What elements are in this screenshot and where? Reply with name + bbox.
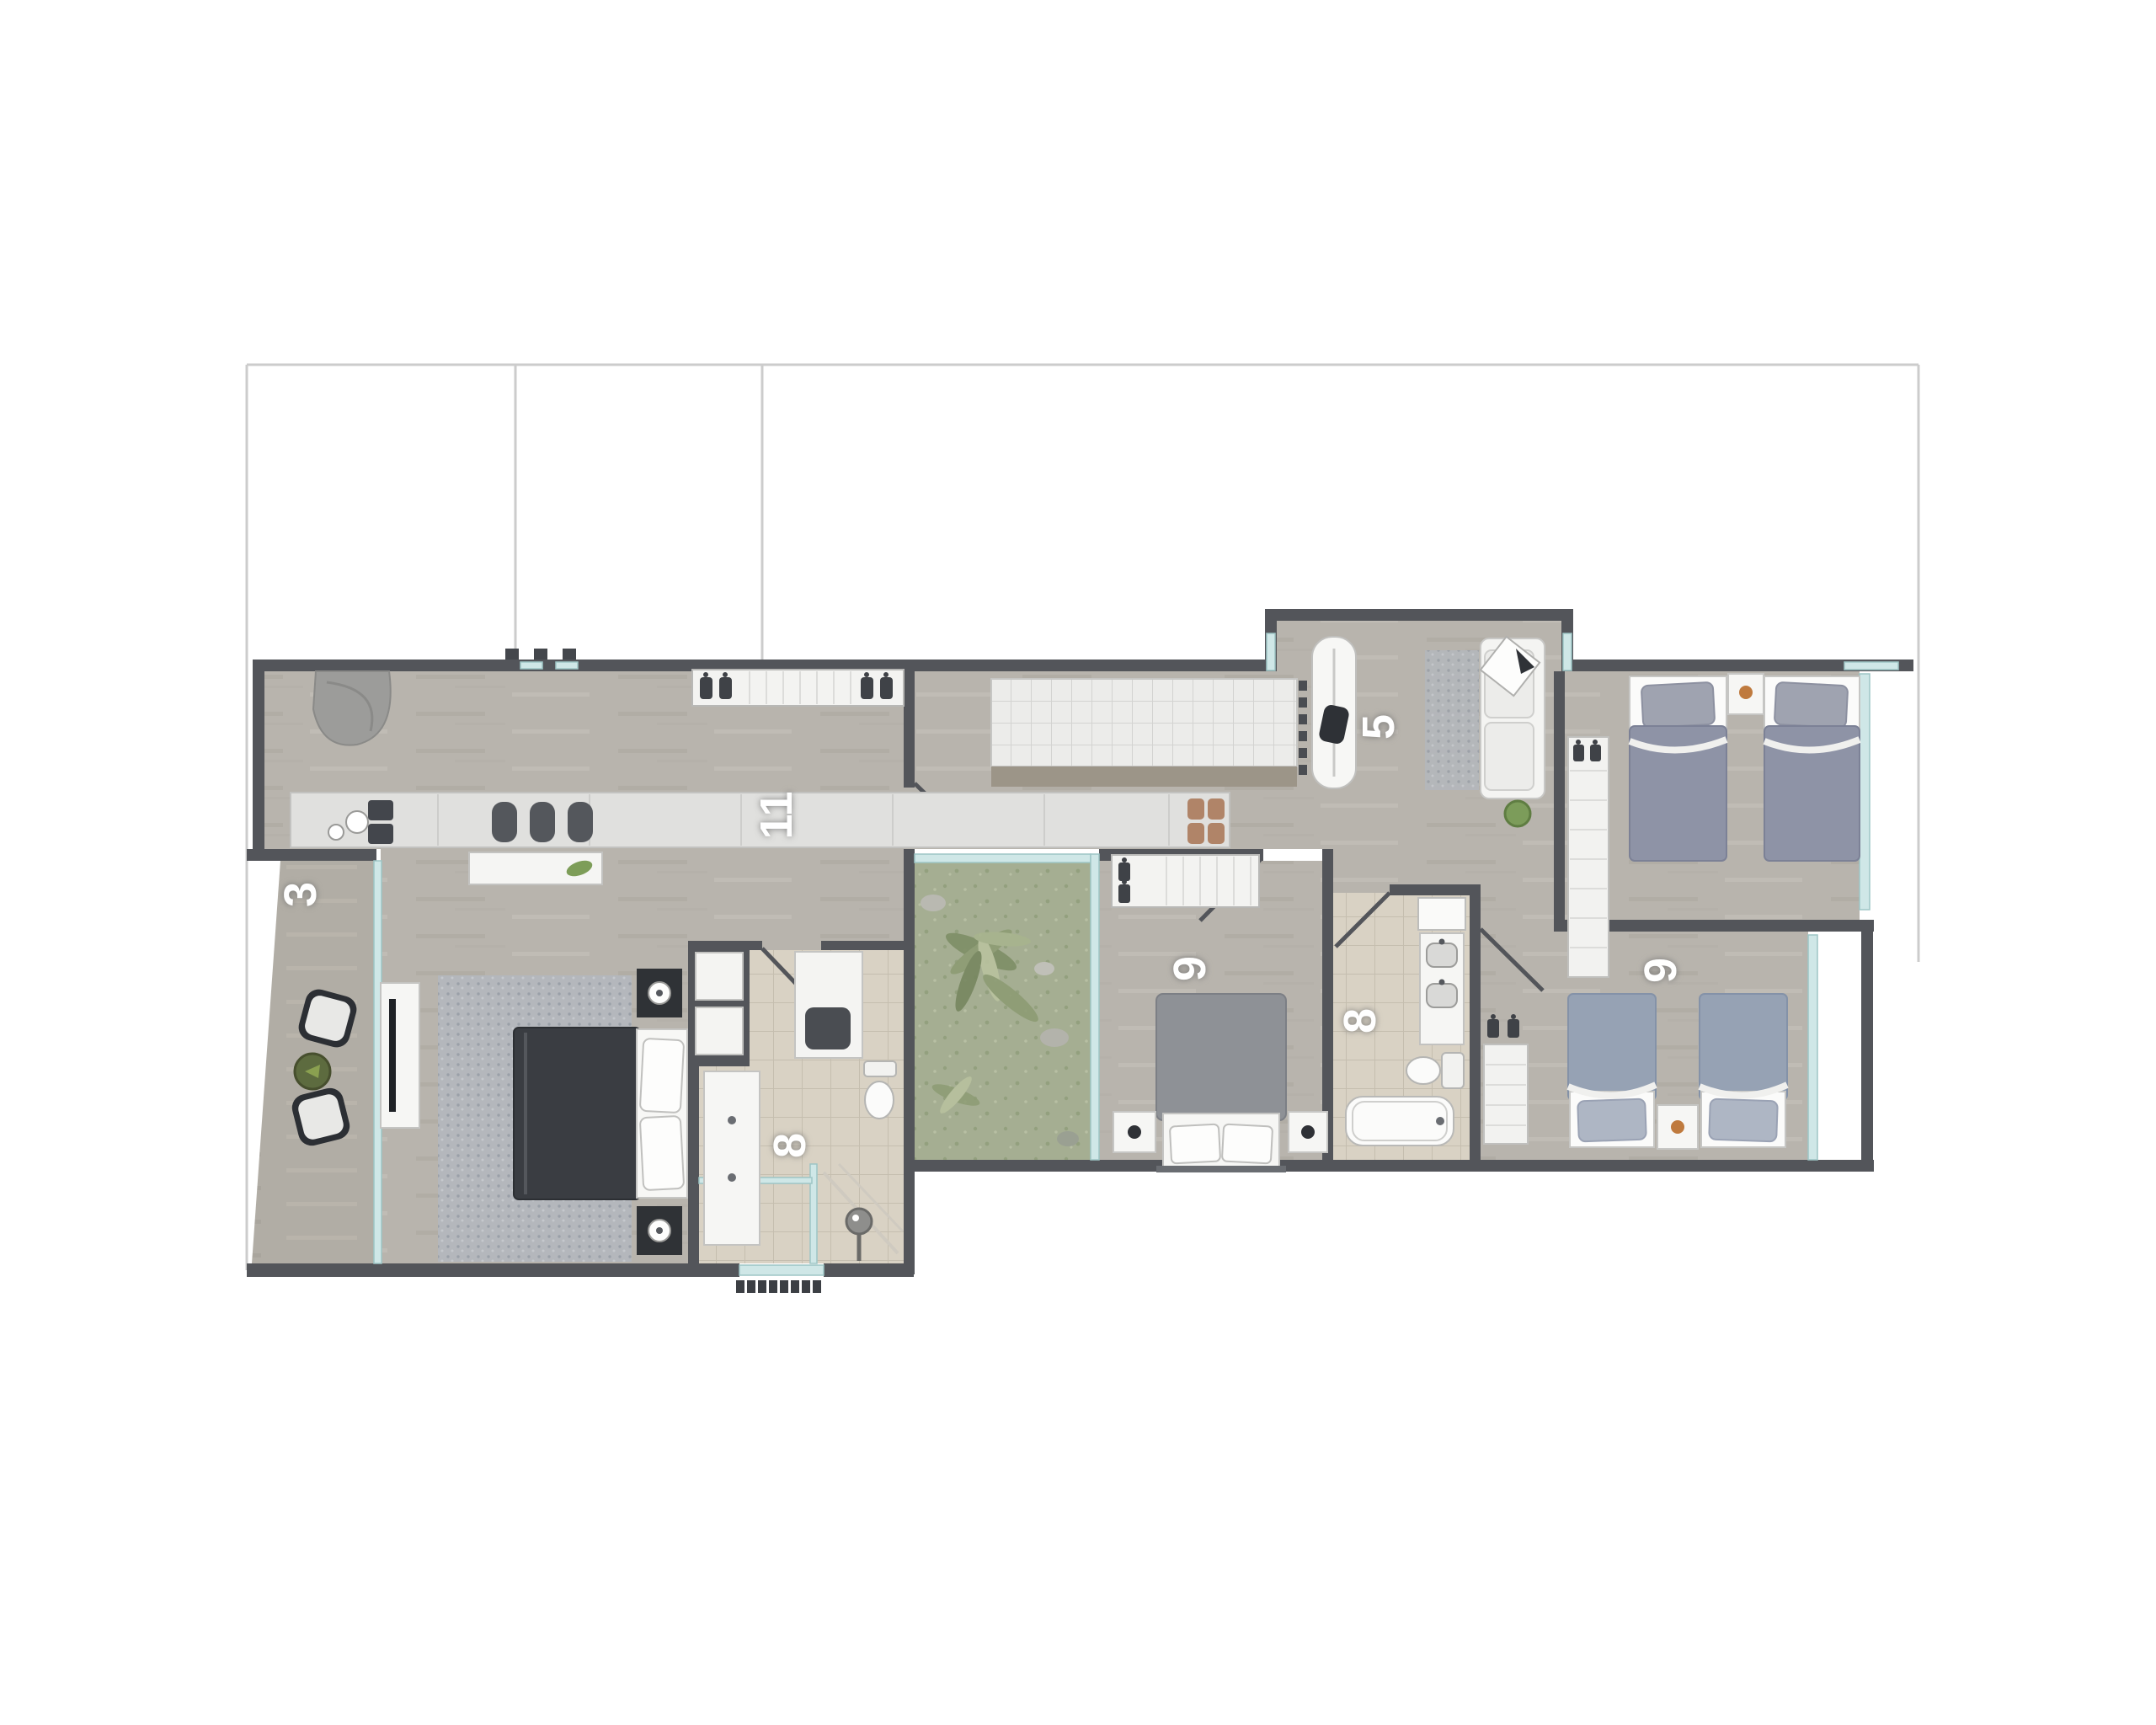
pillow-icon <box>1577 1099 1646 1142</box>
wall-left <box>253 660 264 851</box>
bar-stool <box>568 802 593 842</box>
bar-stool <box>530 802 555 842</box>
wall-mark <box>534 649 547 660</box>
pillow-icon <box>1170 1124 1220 1164</box>
duvet <box>1700 994 1787 1100</box>
wall-mark <box>563 649 576 660</box>
wall-bath-master-north-b <box>821 941 904 950</box>
tv-icon <box>389 999 396 1112</box>
bed-icon <box>1764 676 1860 861</box>
wall-utility-top <box>1265 609 1573 621</box>
wall-bedroom-right-east <box>1861 920 1873 1172</box>
room-label-bedroom-center: 9 <box>1165 956 1215 981</box>
wardrobe <box>1112 855 1259 907</box>
wall-bathroom-shared-top <box>1390 884 1481 895</box>
floor-plan-page: 3 11 5 9 8 8 9 <box>0 0 2156 1725</box>
faucet-icon <box>728 1173 736 1182</box>
wall-hall-divider <box>904 671 915 788</box>
bedroom-topright-window-top <box>1844 662 1898 670</box>
headboard <box>1156 1166 1286 1172</box>
table-lamp-icon <box>1301 1125 1315 1139</box>
garden-glass-east <box>1091 854 1099 1160</box>
decor-orange-icon <box>1671 1120 1684 1134</box>
wall-bottom-left <box>247 1263 739 1277</box>
shower-drain-icon <box>846 1209 872 1234</box>
duvet <box>514 1028 640 1199</box>
stove-icon <box>368 800 393 820</box>
wardrobe <box>1568 737 1609 977</box>
kitchen-window-mark <box>520 662 542 669</box>
room-label-terrace: 3 <box>275 882 326 907</box>
room-label-bathroom-master: 8 <box>765 1133 815 1158</box>
counter-with-basin <box>795 952 862 1058</box>
wall-garden-left <box>904 849 915 1274</box>
wall-terrace-top <box>247 849 376 861</box>
wall-bottom-bath <box>824 1263 914 1277</box>
plant-table <box>295 1054 330 1089</box>
faucet-icon <box>728 1116 736 1124</box>
room-label-utility: 5 <box>1353 714 1404 740</box>
wall-bedroom-topright-left <box>1554 671 1565 920</box>
bed-icon <box>1700 994 1787 1147</box>
bathtub-icon <box>1346 1097 1454 1146</box>
kitchen-window-mark <box>556 662 578 669</box>
washbasin-counter <box>704 1071 760 1245</box>
toilet-icon <box>864 1061 896 1119</box>
tv-console <box>381 983 419 1128</box>
duvet <box>1568 994 1656 1100</box>
wall-bottom-right-wing <box>915 1160 1874 1172</box>
nightstand <box>637 969 682 1017</box>
storage-cabinet-shelf <box>991 766 1297 787</box>
pillow-icon <box>1709 1099 1778 1142</box>
wardrobe <box>1484 1044 1528 1144</box>
pillow-icon <box>1222 1124 1273 1164</box>
duvet <box>1156 994 1286 1120</box>
bedroom-right-window <box>1808 935 1817 1160</box>
sink-icon <box>805 1007 851 1049</box>
shelf-niche <box>688 941 750 1066</box>
room-label-living: 11 <box>751 791 802 839</box>
plant-icon <box>1505 801 1530 826</box>
utility-rug <box>1425 650 1479 790</box>
wall-mark <box>505 649 519 660</box>
floor-plan: 3 11 5 9 8 8 9 <box>0 0 2156 1725</box>
pillow-icon <box>640 1116 684 1190</box>
pillow-icon <box>1774 682 1849 728</box>
utility-window-right <box>1563 633 1572 670</box>
pillow-icon <box>640 1039 684 1113</box>
decor-orange-icon <box>1739 686 1753 699</box>
clothes-hanger-icon <box>1118 857 1130 903</box>
bedroom-topright-window-side <box>1860 674 1870 910</box>
storage-cabinet <box>991 679 1297 766</box>
wall-bathroom-shared-right <box>1470 884 1481 1160</box>
sink-icon <box>328 825 344 840</box>
pillow-icon <box>1641 682 1716 728</box>
nightstand <box>637 1206 682 1255</box>
bed-icon <box>1568 994 1656 1147</box>
table-lamp-icon <box>1128 1125 1141 1139</box>
bed-icon <box>514 1028 687 1199</box>
bed-icon <box>1630 676 1726 861</box>
room-label-bedroom-right: 9 <box>1636 958 1686 983</box>
bed-icon <box>1156 994 1286 1172</box>
room-label-bathroom-shared: 8 <box>1335 1008 1385 1033</box>
sink-icon <box>346 811 368 833</box>
entrance-mat-icon <box>736 1280 821 1293</box>
utility-window-left <box>1267 633 1275 670</box>
sofa-icon <box>1481 637 1545 798</box>
entrance-glass-door <box>739 1265 824 1275</box>
garden-glass-north <box>915 854 1091 862</box>
bar-stool <box>492 802 517 842</box>
cistern <box>1418 898 1465 930</box>
stove-icon <box>368 824 393 844</box>
